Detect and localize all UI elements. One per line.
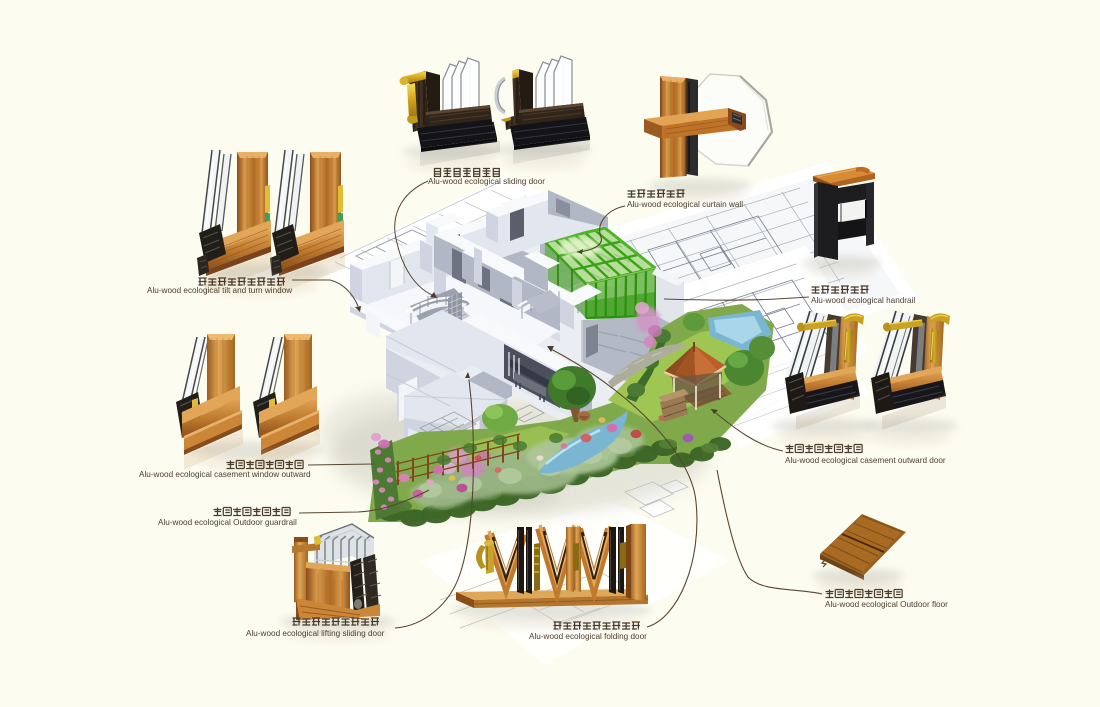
svg-text:Alu-wood ecological curtain wa: Alu-wood ecological curtain wall <box>627 200 743 209</box>
svg-text:Alu-wood ecological lifting sl: Alu-wood ecological lifting sliding door <box>246 629 385 638</box>
svg-text:Alu-wood ecological folding do: Alu-wood ecological folding door <box>529 632 647 641</box>
svg-text:Alu-wood ecological handrail: Alu-wood ecological handrail <box>811 296 915 305</box>
svg-text:Alu-wood ecological casement o: Alu-wood ecological casement outward doo… <box>785 456 946 465</box>
svg-text:Alu-wood ecological casement w: Alu-wood ecological casement window outw… <box>139 470 311 479</box>
svg-text:Alu-wood ecological tilt and t: Alu-wood ecological tilt and turn window <box>147 286 292 295</box>
svg-text:Alu-wood ecological Outdoor gu: Alu-wood ecological Outdoor guardrail <box>158 518 297 527</box>
svg-text:Alu-wood ecological sliding do: Alu-wood ecological sliding door <box>428 177 545 186</box>
svg-text:Alu-wood ecological Outdoor fl: Alu-wood ecological Outdoor floor <box>825 600 948 609</box>
